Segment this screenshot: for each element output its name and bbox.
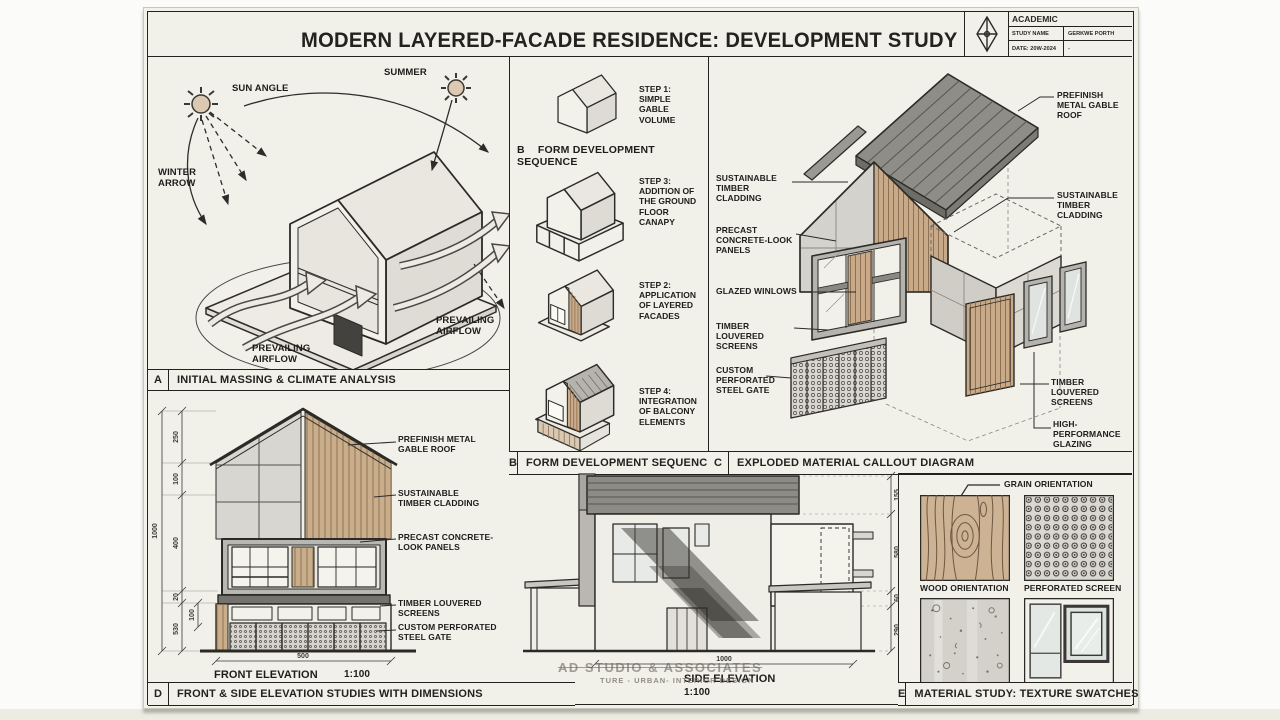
step3-text: STEP 3: ADDITION OF THE GROUND FLOOR CAN… <box>639 176 701 227</box>
panel-d-caption-text: FRONT & SIDE ELEVATION STUDIES WITH DIME… <box>169 683 483 705</box>
callout-steel-gate: CUSTOM PERFORATED STEEL GATE <box>716 366 778 395</box>
step1-house-drawing <box>539 66 635 152</box>
front-facade <box>200 409 416 651</box>
panel-b-form-development: STEP 1: SIMPLE GABLE VOLUME B FORM DEVEL… <box>509 56 708 451</box>
sun-icon-winter <box>184 87 218 121</box>
dim-20: 20 <box>173 593 180 601</box>
side-building <box>523 474 875 651</box>
front-elevation-scale: 1:100 <box>344 669 370 681</box>
panel-a-caption-text: INITIAL MASSING & CLIMATE ANALYSIS <box>169 370 396 390</box>
step4-desc: INTEGRATION OF BALCONY ELEMENTS <box>639 396 697 426</box>
label-winter-arrow: WINTER ARROW <box>158 168 210 190</box>
panel-d-caption: D FRONT & SIDE ELEVATION STUDIES WITH DI… <box>148 682 575 706</box>
panel-a-caption: A INITIAL MASSING & CLIMATE ANALYSIS <box>148 369 509 391</box>
step2-desc: APPLICATION OF LAYERED FACADES <box>639 290 696 320</box>
panel-e-caption: E MATERIAL STUDY: TEXTURE SWATCHES <box>898 682 1132 706</box>
step4-house-drawing <box>521 354 639 454</box>
front-elevation-title: FRONT ELEVATION <box>214 669 318 682</box>
label-summer: SUMMER <box>384 68 427 79</box>
titleblock-study-name-label: STUDY NAME <box>1008 27 1064 41</box>
dim-width-500: 500 <box>297 653 309 660</box>
step3-desc: ADDITION OF THE GROUND FLOOR CANAPY <box>639 186 696 227</box>
callout-glazed-windows: GLAZED WINLOWS <box>716 287 806 297</box>
label-sun-angle: SUN ANGLE <box>232 84 289 95</box>
front-callout-louvered: TIMBER LOUVERED SCREENS <box>398 599 490 619</box>
callout-timber-louvered-left: TIMBER LOUVERED SCREENS <box>716 322 796 351</box>
callout-sustainable-timber-right: SUSTAINABLE TIMBER CLADDING <box>1057 191 1129 220</box>
studio-watermark-line2: TURE - URBAN- INTERIOR DESIGN <box>600 676 754 685</box>
label-prevailing-airflow-left: PREVAILING AIRFLOW <box>252 344 324 366</box>
dim-total: 1000 <box>152 523 159 539</box>
glazed-window-assembly <box>812 238 906 340</box>
glass-swatch <box>1024 598 1114 684</box>
step4-text: STEP 4: INTEGRATION OF BALCONY ELEMENTS <box>639 386 701 427</box>
wood-swatch-label: WOOD ORIENTATION <box>920 584 1009 594</box>
panel-e-caption-text: MATERIAL STUDY: TEXTURE SWATCHES <box>906 683 1138 705</box>
titleblock-category: ACADEMIC <box>1008 12 1132 27</box>
perforated-gate-piece <box>791 338 886 418</box>
step1-desc: SIMPLE GABLE VOLUME <box>639 94 675 124</box>
dim-sub-100: 100 <box>189 609 196 621</box>
panel-c-exploded-diagram: SUSTAINABLE TIMBER CLADDING PRECAST CONC… <box>708 56 1134 451</box>
step2-no: STEP 2: <box>639 280 671 290</box>
compass-icon <box>968 14 1006 54</box>
callout-high-performance-glazing: HIGH-PERFORMANCE GLAZING <box>1053 420 1131 449</box>
step3-no: STEP 3: <box>639 176 671 186</box>
callout-sustainable-timber-left: SUSTAINABLE TIMBER CLADDING <box>716 174 794 203</box>
presentation-sheet: MODERN LAYERED-FACADE RESIDENCE: DEVELOP… <box>143 7 1139 709</box>
side-elevation-scale: 1:100 <box>684 687 710 699</box>
screenshot-stage: MODERN LAYERED-FACADE RESIDENCE: DEVELOP… <box>0 0 1280 720</box>
panel-b-heading-letter: B <box>517 144 525 156</box>
front-callout-precast: PRECAST CONCRETE-LOOK PANELS <box>398 533 498 553</box>
sun-icon-summer <box>441 73 471 103</box>
panel-e-letter: E <box>898 683 906 705</box>
callout-precast-panels: PRECAST CONCRETE-LOOK PANELS <box>716 226 796 255</box>
step1-no: STEP 1: <box>639 84 671 94</box>
perforated-swatch <box>1024 495 1114 581</box>
callout-prefinish-roof: PREFINISH METAL GABLE ROOF <box>1057 91 1129 120</box>
concrete-swatch <box>920 598 1010 684</box>
front-callout-timber: SUSTAINABLE TIMBER CLADDING <box>398 489 490 509</box>
panel-e-texture-swatches: GRAIN ORIENTATION WOOD OR <box>898 473 1132 683</box>
wood-swatch <box>920 495 1010 581</box>
panel-b-letter: B <box>509 452 518 474</box>
step3-house-drawing <box>525 162 637 262</box>
louver-screen-piece <box>966 294 1014 396</box>
dim-400: 400 <box>173 537 180 549</box>
dim-530: 530 <box>173 623 180 635</box>
panel-a-letter: A <box>148 370 169 390</box>
backdrop-bottom-strip <box>0 709 1280 720</box>
label-prevailing-airflow-right: PREVAILING AIRFLOW <box>436 316 508 338</box>
step2-house-drawing <box>525 260 637 356</box>
step1-text: STEP 1: SIMPLE GABLE VOLUME <box>639 84 701 125</box>
front-callout-roof: PREFINISH METAL GABLE ROOF <box>398 435 490 455</box>
dim-250: 250 <box>173 431 180 443</box>
titleblock-divider-1 <box>964 12 965 56</box>
titleblock-date-label: DATE: 20W-2024 <box>1008 41 1064 56</box>
titleblock-date-value: - <box>1064 41 1132 56</box>
step4-no: STEP 4: <box>639 386 671 396</box>
titleblock-study-name-value: GERKWE PORTH <box>1064 27 1132 41</box>
callout-timber-louvered-right: TIMBER LOUVERED SCREENS <box>1051 378 1131 407</box>
step2-text: STEP 2: APPLICATION OF LAYERED FACADES <box>639 280 701 321</box>
perforated-swatch-label: PERFORATED SCREEN <box>1024 584 1121 594</box>
dim-100: 100 <box>173 473 180 485</box>
studio-watermark-line1: AD STUDIO & ASSOCIATES <box>558 660 762 675</box>
grain-orientation-label: GRAIN ORIENTATION <box>1004 480 1114 490</box>
panel-a-climate-analysis: SUN ANGLE SUMMER WINTER ARROW PREVAILING… <box>148 56 509 369</box>
panel-d-front-elevation: 1000 250 100 400 20 530 100 500 PREFINIS… <box>148 389 509 682</box>
panel-d-letter: D <box>148 683 169 705</box>
front-callout-gate: CUSTOM PERFORATED STEEL GATE <box>398 623 498 643</box>
